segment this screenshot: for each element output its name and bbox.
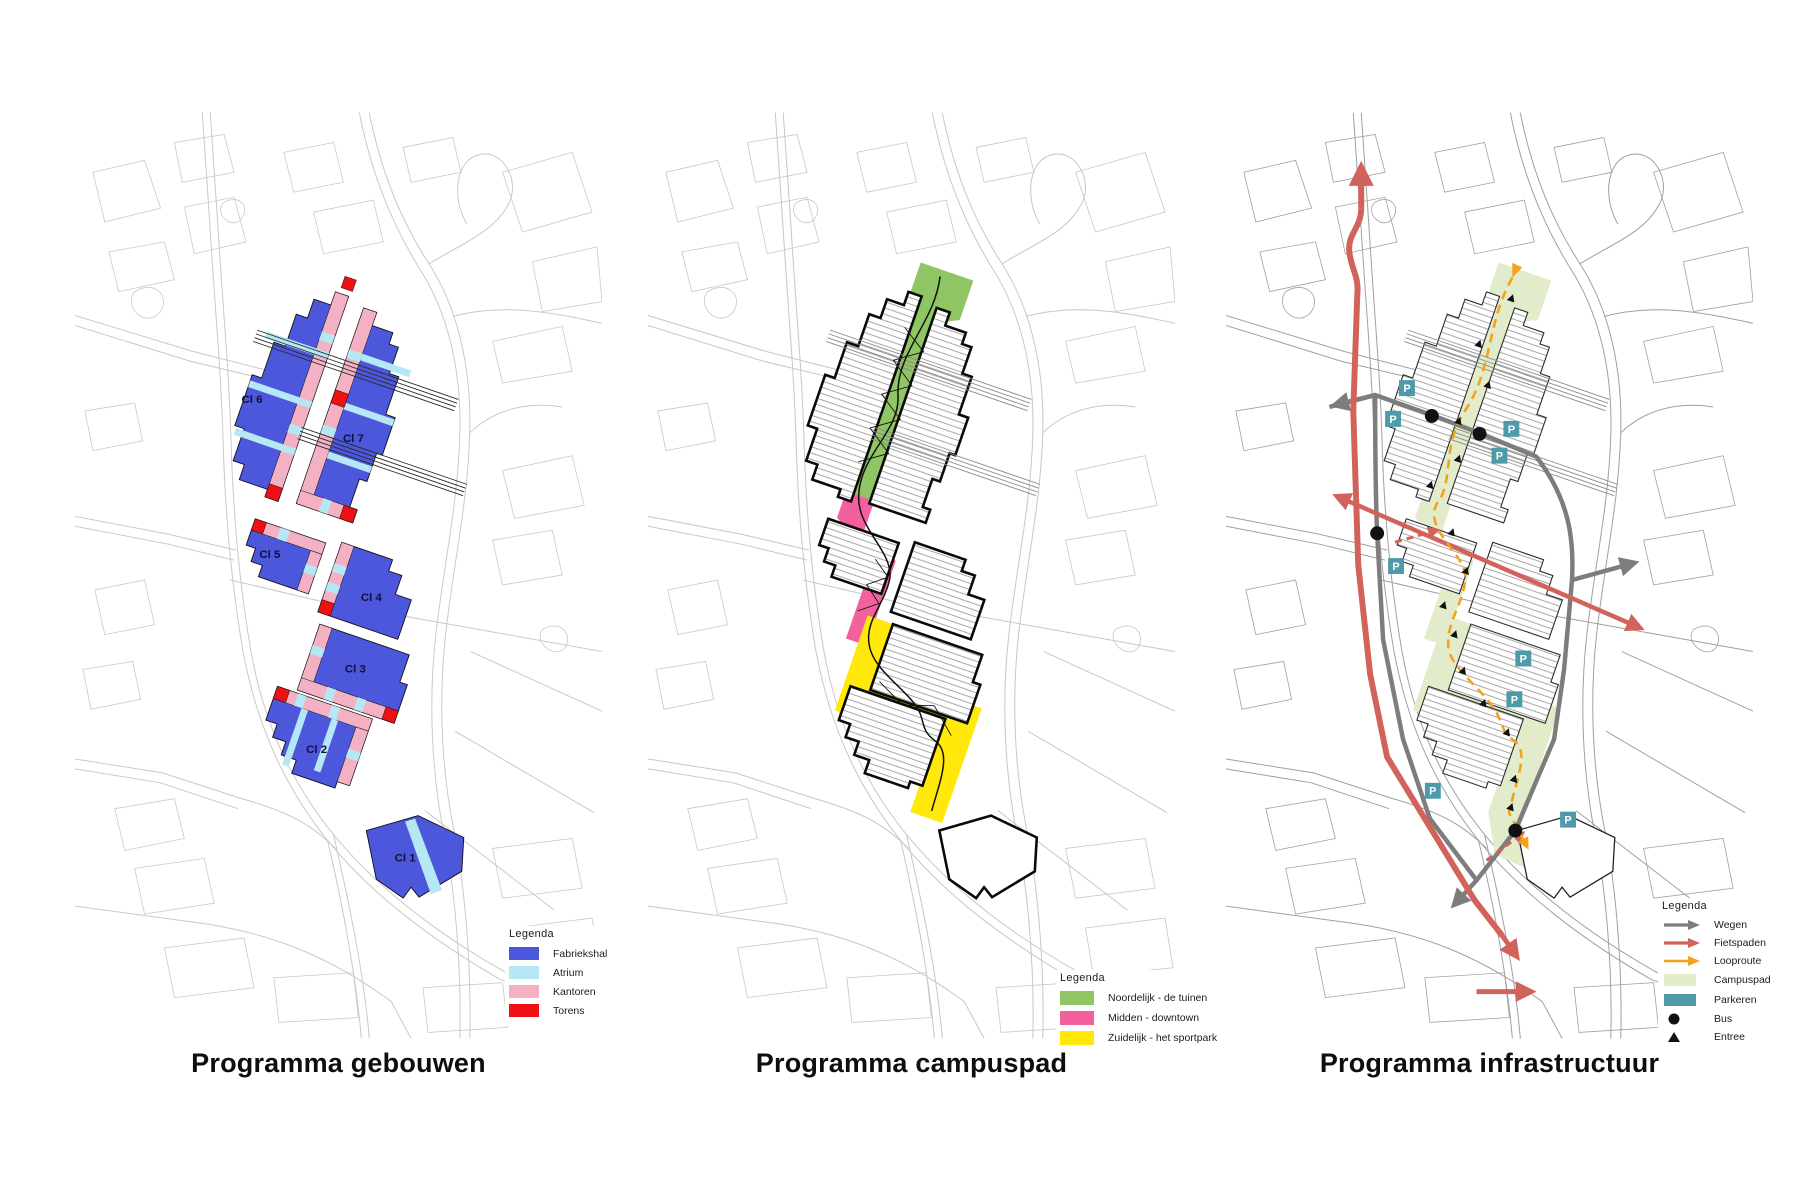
campus-buildings bbox=[707, 275, 1094, 799]
legend-item: Fietspaden bbox=[1662, 937, 1771, 949]
legend-label: Noordelijk - de tuinen bbox=[1108, 992, 1207, 1004]
legend-item: Bus bbox=[1662, 1013, 1771, 1025]
legend-label: Torens bbox=[553, 1005, 585, 1017]
legend-item: Kantoren bbox=[509, 985, 607, 998]
fietspaden-arrow-icon bbox=[1662, 937, 1702, 949]
map-panel-infrastructuur: P P P P P P P P P Legenda Wegen Fietspad… bbox=[1226, 110, 1753, 1041]
legend-label: Bus bbox=[1714, 1013, 1732, 1025]
legend-swatch bbox=[1060, 1011, 1096, 1025]
site-map-campuspad bbox=[648, 110, 1175, 1041]
wegen-arrow-icon bbox=[1662, 919, 1702, 931]
legend-item: Campuspad bbox=[1662, 973, 1771, 987]
legend-item: Noordelijk - de tuinen bbox=[1060, 991, 1217, 1005]
legend-label: Zuidelijk - het sportpark bbox=[1108, 1032, 1217, 1044]
legend-item: Parkeren bbox=[1662, 993, 1771, 1007]
legend-item: Torens bbox=[509, 1004, 607, 1017]
map-panel-campuspad: Legenda Noordelijk - de tuinen Midden - … bbox=[648, 110, 1175, 1041]
map-panel-gebouwen: Cl 6 Cl 7 Cl 5 Cl 4 Cl 3 Cl 2 Cl 1 Legen… bbox=[75, 110, 602, 1041]
legend-label: Campuspad bbox=[1714, 974, 1771, 986]
p-marker: P bbox=[1520, 654, 1527, 666]
legend-swatch bbox=[1060, 1031, 1096, 1045]
legend-label: Wegen bbox=[1714, 919, 1747, 931]
legend-label: Entree bbox=[1714, 1031, 1745, 1043]
campuspad-swatch bbox=[1662, 973, 1702, 987]
sportpark-outline bbox=[1517, 816, 1614, 899]
p-marker: P bbox=[1403, 383, 1410, 395]
p-marker: P bbox=[1496, 451, 1503, 463]
legend-label: Fabriekshal bbox=[553, 948, 607, 960]
legend-title: Legenda bbox=[509, 928, 607, 940]
building-label: Cl 6 bbox=[242, 394, 263, 406]
p-marker: P bbox=[1508, 424, 1515, 436]
legend-title: Legenda bbox=[1060, 972, 1217, 984]
legend-item: Zuidelijk - het sportpark bbox=[1060, 1031, 1217, 1045]
legend-label: Atrium bbox=[553, 967, 583, 979]
legend-swatch bbox=[1060, 991, 1096, 1005]
p-marker: P bbox=[1564, 815, 1571, 827]
looproute-arrow-icon bbox=[1662, 955, 1702, 967]
site-map-gebouwen: Cl 6 Cl 7 Cl 5 Cl 4 Cl 3 Cl 2 Cl 1 bbox=[75, 110, 602, 1041]
p-marker: P bbox=[1429, 786, 1436, 798]
legend-item: Midden - downtown bbox=[1060, 1011, 1217, 1025]
p-marker: P bbox=[1511, 694, 1518, 706]
legend-label: Midden - downtown bbox=[1108, 1012, 1199, 1024]
entree-triangle-icon bbox=[1662, 1031, 1702, 1043]
building-label: Cl 5 bbox=[259, 549, 281, 561]
legend-campuspad: Legenda Noordelijk - de tuinen Midden - … bbox=[1056, 970, 1221, 1053]
building-label: Cl 2 bbox=[306, 744, 327, 756]
p-marker: P bbox=[1392, 561, 1399, 573]
building-label: Cl 4 bbox=[361, 592, 383, 604]
legend-label: Parkeren bbox=[1714, 994, 1757, 1006]
panel-title-infrastructuur: Programma infrastructuur bbox=[1226, 1048, 1753, 1079]
legend-swatch bbox=[509, 966, 541, 979]
legend-infrastructuur: Legenda Wegen Fietspaden Looproute Campu… bbox=[1658, 898, 1775, 1051]
parkeren-swatch bbox=[1662, 993, 1702, 1007]
campus-buildings bbox=[1285, 275, 1672, 799]
legend-item: Atrium bbox=[509, 966, 607, 979]
panel-title-campuspad: Programma campuspad bbox=[648, 1048, 1175, 1079]
legend-swatch bbox=[509, 985, 541, 998]
legend-item: Entree bbox=[1662, 1031, 1771, 1043]
building-label: Cl 1 bbox=[395, 852, 417, 864]
building-label: Cl 3 bbox=[345, 663, 366, 675]
legend-label: Fietspaden bbox=[1714, 937, 1766, 949]
building-label: Cl 7 bbox=[343, 433, 364, 445]
legend-swatch bbox=[509, 947, 541, 960]
bus-dot-icon bbox=[1662, 1013, 1702, 1025]
legend-label: Looproute bbox=[1714, 955, 1761, 967]
masterplan-triptych: Cl 6 Cl 7 Cl 5 Cl 4 Cl 3 Cl 2 Cl 1 Legen… bbox=[0, 0, 1800, 1200]
sportpark-outline bbox=[939, 816, 1036, 899]
legend-label: Kantoren bbox=[553, 986, 596, 998]
legend-gebouwen: Legenda Fabriekshal Atrium Kantoren Tore… bbox=[505, 926, 611, 1025]
legend-item: Fabriekshal bbox=[509, 947, 607, 960]
p-marker: P bbox=[1389, 414, 1396, 426]
legend-item: Looproute bbox=[1662, 955, 1771, 967]
legend-swatch bbox=[509, 1004, 541, 1017]
legend-title: Legenda bbox=[1662, 900, 1771, 912]
legend-item: Wegen bbox=[1662, 919, 1771, 931]
panel-title-gebouwen: Programma gebouwen bbox=[75, 1048, 602, 1079]
